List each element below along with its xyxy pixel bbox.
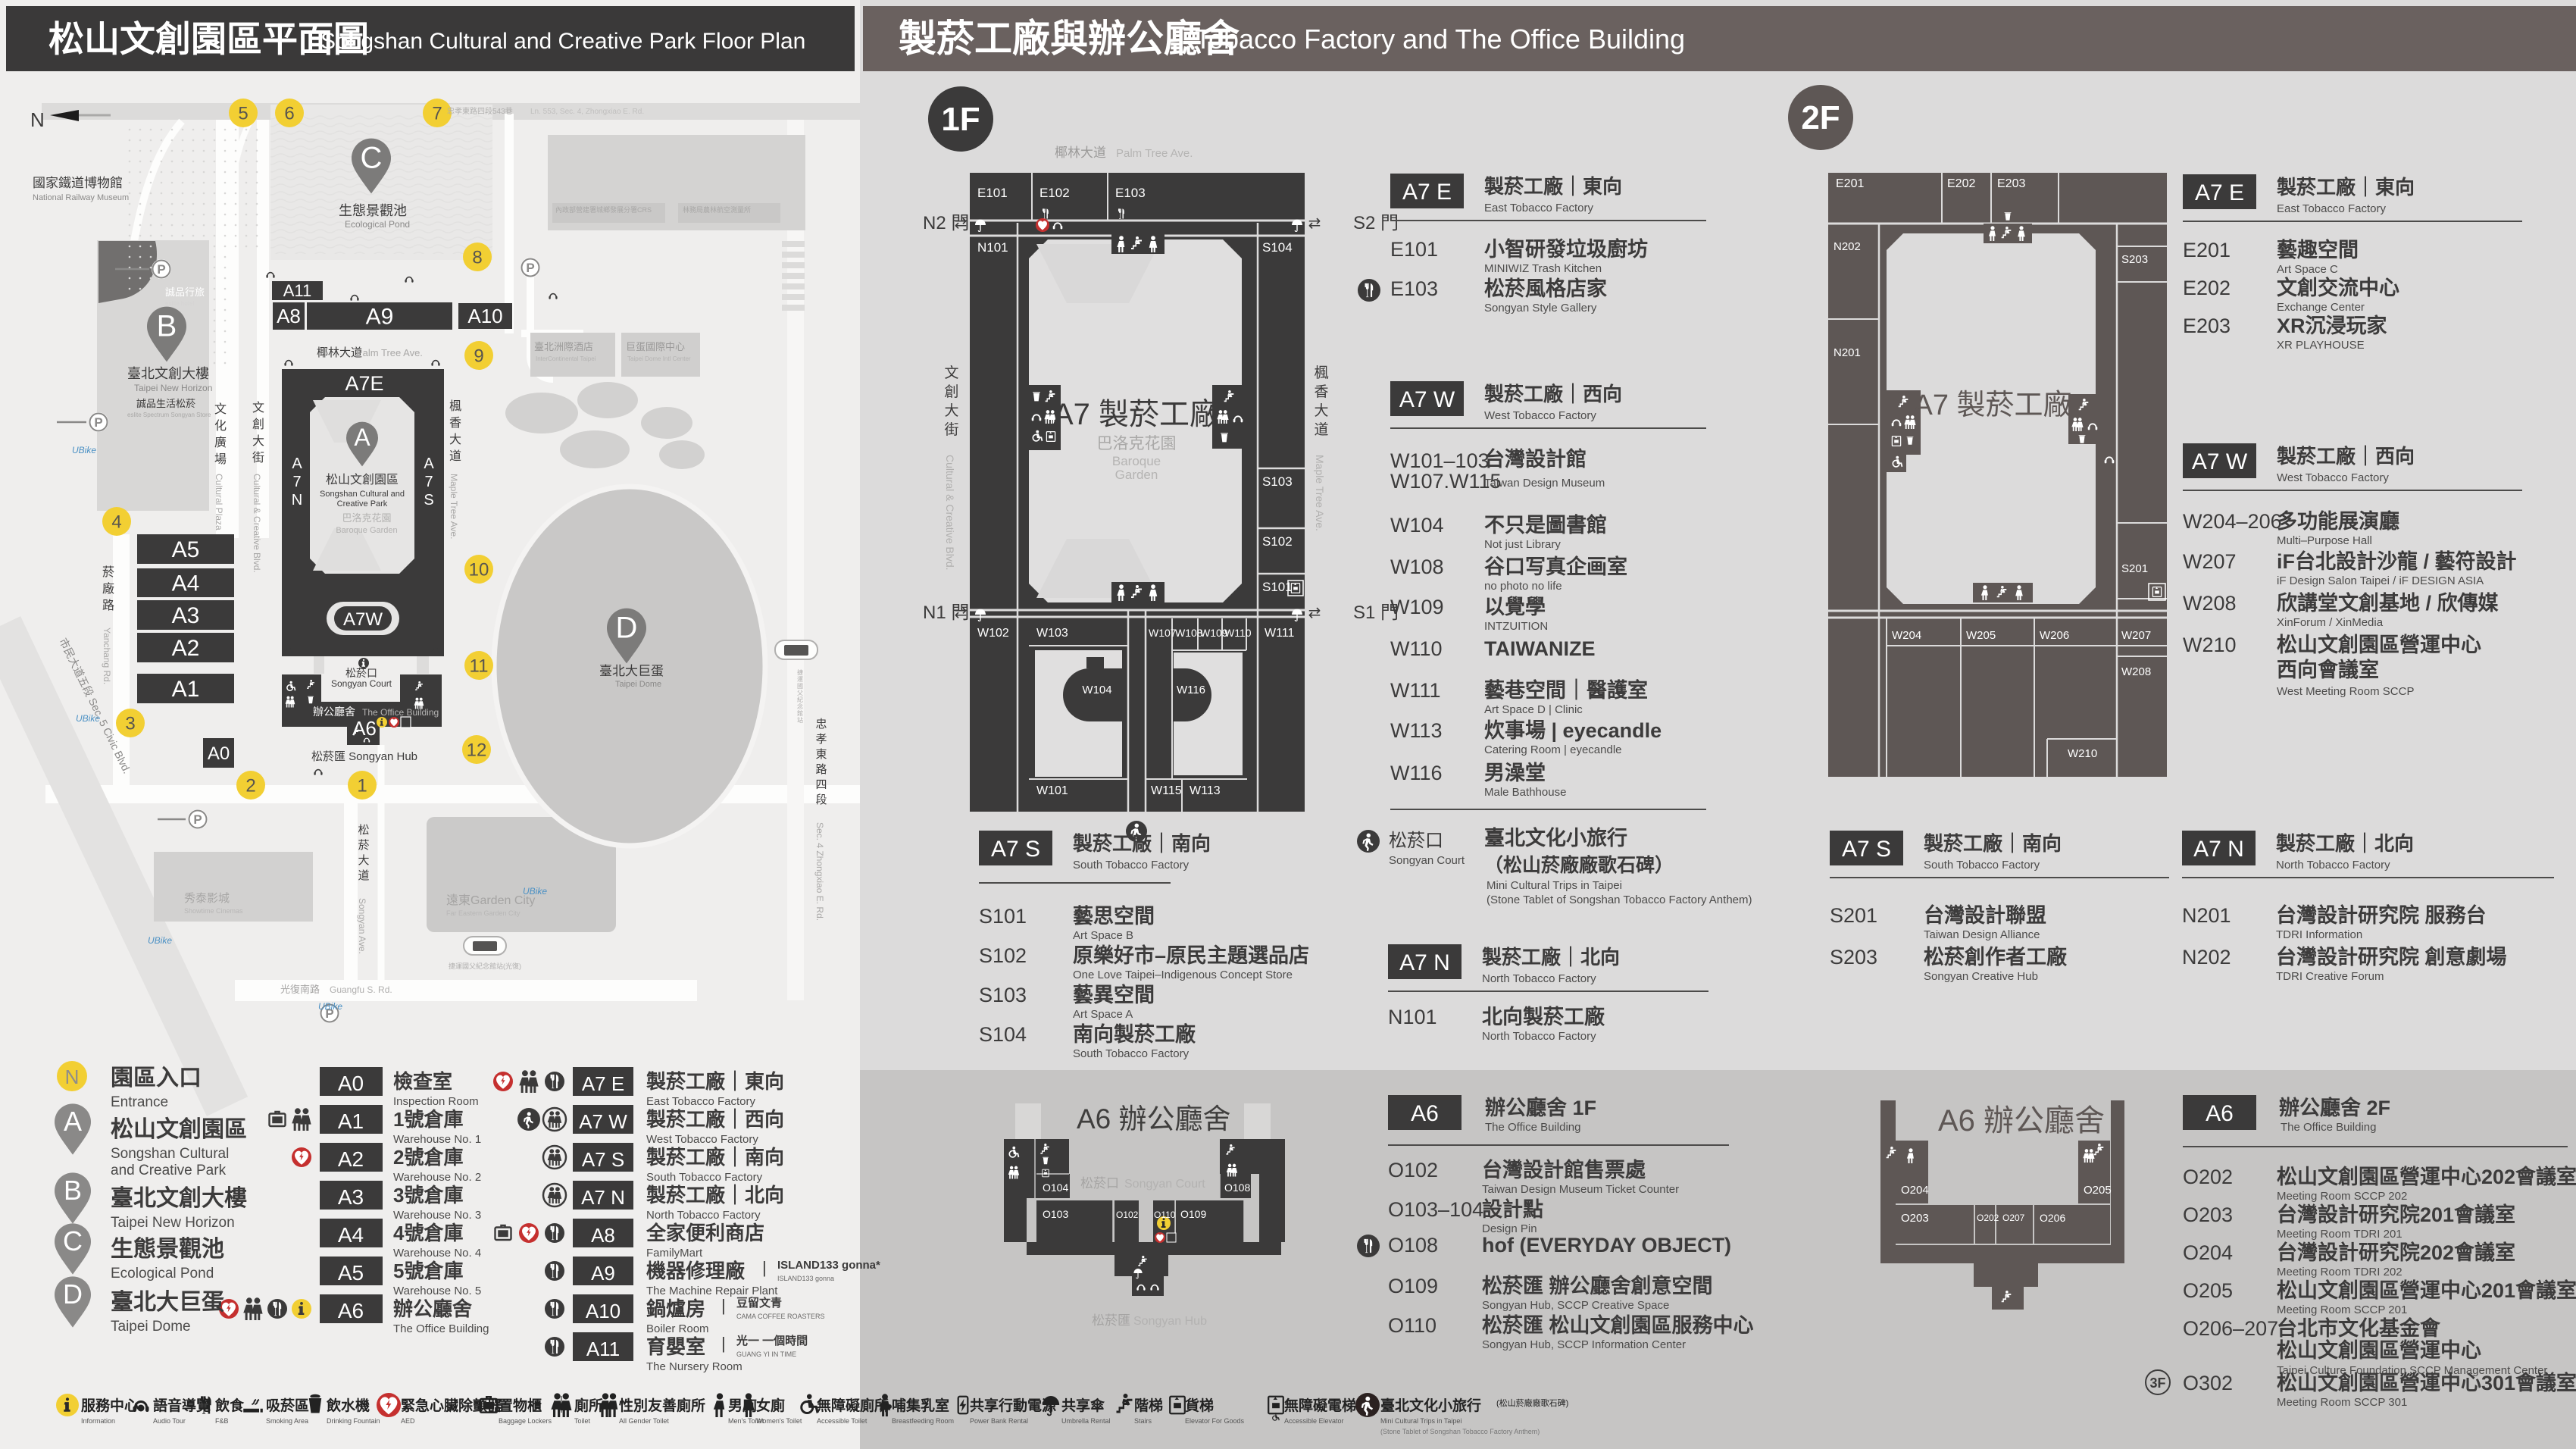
svg-text:A8: A8 [591, 1224, 615, 1247]
svg-text:A2: A2 [172, 636, 200, 661]
svg-text:A7 S: A7 S [1842, 837, 1891, 862]
svg-text:A7 S: A7 S [582, 1148, 624, 1171]
svg-text:One Love Taipei–Indigenous Con: One Love Taipei–Indigenous Concept Store [1073, 969, 1293, 981]
svg-text:松山文創園區營運中心201會議室: 松山文創園區營運中心201會議室 [2277, 1278, 2576, 1302]
svg-text:A10: A10 [467, 305, 502, 327]
svg-text:W103: W103 [1036, 627, 1068, 640]
svg-text:楓: 楓 [1314, 365, 1328, 381]
svg-text:語音導覽: 語音導覽 [153, 1397, 211, 1414]
svg-text:創: 創 [944, 383, 958, 400]
svg-text:1號倉庫: 1號倉庫 [393, 1108, 463, 1131]
svg-text:台灣設計館售票處: 台灣設計館售票處 [1482, 1158, 1646, 1181]
svg-text:Audio Tour: Audio Tour [153, 1417, 186, 1425]
svg-text:W104: W104 [1082, 684, 1111, 696]
svg-text:INTZUITION: INTZUITION [1484, 620, 1548, 633]
svg-text:Songyan Court: Songyan Court [331, 678, 392, 689]
svg-text:N202: N202 [1834, 240, 1861, 253]
svg-text:設計點: 設計點 [1482, 1197, 1543, 1221]
svg-text:貨梯: 貨梯 [1185, 1397, 1214, 1414]
svg-text:豆留文青: 豆留文青 [736, 1296, 782, 1310]
svg-text:UBike: UBike [72, 445, 96, 455]
svg-text:4號倉庫: 4號倉庫 [393, 1222, 463, 1244]
svg-text:台灣設計研究院 服務台: 台灣設計研究院 服務台 [2276, 903, 2487, 927]
svg-text:全家便利商店: 全家便利商店 [646, 1222, 764, 1244]
svg-text:East Tobacco Factory: East Tobacco Factory [646, 1095, 755, 1108]
svg-text:S: S [424, 492, 433, 509]
svg-text:文: 文 [252, 401, 264, 415]
svg-text:松菸匯 松山文創園區服務中心: 松菸匯 松山文創園區服務中心 [1482, 1313, 1754, 1337]
svg-text:W116: W116 [1177, 684, 1205, 696]
svg-text:Palm Tree Ave.: Palm Tree Ave. [356, 347, 423, 358]
svg-text:9: 9 [474, 346, 483, 366]
svg-text:Creative Park: Creative Park [337, 499, 388, 509]
svg-text:飲水機: 飲水機 [326, 1397, 370, 1414]
svg-text:7: 7 [432, 103, 442, 124]
svg-text:飲食: 飲食 [214, 1397, 245, 1414]
svg-text:A9: A9 [591, 1262, 615, 1285]
svg-text:O302: O302 [2183, 1372, 2233, 1394]
svg-text:O206–207: O206–207 [2183, 1317, 2278, 1340]
svg-text:F&B: F&B [215, 1417, 229, 1425]
svg-text:運: 運 [797, 676, 803, 683]
svg-text:階梯: 階梯 [1134, 1397, 1163, 1414]
svg-text:Taipei Dome: Taipei Dome [615, 680, 661, 689]
svg-text:W210: W210 [2183, 634, 2237, 656]
svg-text:松山文創園區營運中心: 松山文創園區營運中心 [2277, 1338, 2481, 1362]
svg-text:父: 父 [797, 690, 803, 696]
svg-text:A7 E: A7 E [582, 1072, 624, 1095]
svg-text:UBike: UBike [148, 935, 172, 946]
svg-text:1F: 1F [941, 101, 980, 138]
svg-text:藝異空間: 藝異空間 [1073, 983, 1155, 1006]
svg-text:Umbrella Rental: Umbrella Rental [1061, 1417, 1111, 1425]
svg-text:C: C [63, 1225, 83, 1257]
svg-text:無障礙廁所: 無障礙廁所 [817, 1397, 889, 1414]
svg-text:楓: 楓 [449, 399, 461, 413]
svg-text:InterContinental Taipei: InterContinental Taipei [536, 355, 596, 362]
svg-text:製菸工廠｜西向: 製菸工廠｜西向 [2277, 445, 2415, 468]
svg-text:|: | [762, 1258, 767, 1277]
svg-text:W204: W204 [1892, 629, 1921, 642]
svg-text:香: 香 [449, 416, 461, 430]
svg-text:機器修理廠: 機器修理廠 [646, 1260, 746, 1282]
svg-text:文: 文 [944, 365, 958, 381]
svg-text:Palm Tree Ave.: Palm Tree Ave. [1116, 147, 1193, 160]
svg-text:S103: S103 [979, 984, 1027, 1006]
svg-text:多功能展演廳: 多功能展演廳 [2277, 509, 2399, 533]
svg-text:西向會議室: 西向會議室 [2277, 658, 2379, 681]
svg-text:松菸匯: 松菸匯 [1092, 1313, 1130, 1328]
svg-text:W108: W108 [1390, 556, 1444, 578]
svg-text:W116: W116 [1390, 762, 1443, 784]
svg-text:東: 東 [815, 748, 827, 761]
svg-text:7: 7 [292, 474, 301, 490]
svg-text:4: 4 [111, 512, 121, 532]
svg-text:A: A [424, 455, 434, 472]
svg-text:S101: S101 [979, 905, 1027, 928]
svg-text:A6 辦公廳舍: A6 辦公廳舍 [1077, 1103, 1231, 1134]
svg-text:欣講堂文創基地 / 欣傳媒: 欣講堂文創基地 / 欣傳媒 [2277, 591, 2499, 615]
svg-text:E203: E203 [1997, 177, 2025, 190]
svg-text:N201: N201 [1834, 346, 1861, 359]
svg-text:Taiwan Design Alliance: Taiwan Design Alliance [1924, 928, 2040, 941]
svg-text:廁所: 廁所 [574, 1397, 603, 1414]
svg-text:臺北洲際酒店: 臺北洲際酒店 [534, 341, 593, 352]
svg-text:國: 國 [797, 683, 803, 690]
svg-text:辦公廳舍: 辦公廳舍 [313, 706, 355, 718]
svg-text:N101: N101 [1388, 1006, 1437, 1028]
svg-text:All Gender Toilet: All Gender Toilet [619, 1417, 669, 1425]
svg-text:W207: W207 [2183, 550, 2237, 573]
svg-text:N: N [292, 492, 302, 509]
svg-text:Mini Cultural Trips in Taipei: Mini Cultural Trips in Taipei [1487, 879, 1622, 892]
svg-text:松: 松 [358, 824, 369, 837]
svg-text:Maple Tree Ave.: Maple Tree Ave. [449, 474, 459, 540]
svg-text:UBike: UBike [76, 713, 100, 724]
svg-text:O110: O110 [1154, 1210, 1176, 1220]
svg-text:Garden: Garden [1115, 468, 1158, 482]
svg-text:A7 E: A7 E [1402, 180, 1452, 205]
svg-text:Toilet: Toilet [574, 1417, 591, 1425]
svg-text:椰林大道: 椰林大道 [317, 346, 362, 359]
svg-text:Art Space B: Art Space B [1073, 929, 1133, 942]
svg-text:Warehouse No. 3: Warehouse No. 3 [393, 1209, 481, 1222]
svg-text:A9: A9 [366, 305, 394, 330]
svg-text:5號倉庫: 5號倉庫 [393, 1260, 463, 1282]
svg-text:and Creative Park: and Creative Park [111, 1163, 227, 1178]
svg-text:Yanchang Rd.: Yanchang Rd. [102, 627, 112, 684]
svg-text:UBike: UBike [523, 886, 547, 897]
svg-text:藝思空間: 藝思空間 [1073, 904, 1155, 928]
svg-text:East Tobacco Factory: East Tobacco Factory [1484, 202, 1593, 214]
svg-text:MINIWIZ Trash Kitchen: MINIWIZ Trash Kitchen [1484, 262, 1602, 275]
svg-text:服務中心: 服務中心 [81, 1397, 139, 1414]
svg-text:O103–104: O103–104 [1388, 1198, 1483, 1221]
svg-text:E101: E101 [977, 186, 1008, 200]
svg-text:Art Space C: Art Space C [2277, 263, 2338, 276]
svg-text:松菸風格店家: 松菸風格店家 [1484, 277, 1607, 300]
svg-text:Far Eastern Garden City: Far Eastern Garden City [446, 909, 521, 917]
svg-text:鍋爐房: 鍋爐房 [646, 1297, 705, 1320]
svg-text:(Stone Tablet of Songshan Toba: (Stone Tablet of Songshan Tobacco Factor… [1380, 1428, 1540, 1435]
svg-text:N101: N101 [977, 240, 1008, 255]
svg-text:O203: O203 [1901, 1212, 1929, 1225]
svg-text:Warehouse No. 4: Warehouse No. 4 [393, 1247, 481, 1260]
svg-text:Warehouse No. 2: Warehouse No. 2 [393, 1171, 481, 1184]
svg-text:hof (EVERYDAY OBJECT): hof (EVERYDAY OBJECT) [1482, 1234, 1731, 1257]
svg-text:O109: O109 [1180, 1208, 1206, 1220]
svg-text:館: 館 [797, 709, 803, 717]
svg-text:West Tobacco Factory: West Tobacco Factory [2277, 471, 2389, 484]
svg-text:Songyan Hub: Songyan Hub [1133, 1315, 1207, 1328]
svg-text:West Tobacco Factory: West Tobacco Factory [1484, 409, 1596, 422]
svg-text:10: 10 [469, 559, 489, 580]
svg-text:臺北大巨蛋: 臺北大巨蛋 [599, 664, 664, 678]
svg-text:台灣設計研究院202會議室: 台灣設計研究院202會議室 [2277, 1241, 2515, 1264]
svg-text:W109: W109 [1390, 596, 1444, 618]
svg-text:A7 S: A7 S [991, 837, 1040, 862]
svg-text:eslite Spectrum Songyan Store: eslite Spectrum Songyan Store [127, 412, 211, 418]
svg-text:2: 2 [245, 775, 255, 796]
svg-text:男廁: 男廁 [728, 1397, 757, 1414]
svg-text:臺北文化小旅行: 臺北文化小旅行 [1380, 1397, 1481, 1414]
svg-text:街: 街 [944, 421, 958, 438]
svg-text:製菸工廠｜南向: 製菸工廠｜南向 [646, 1146, 784, 1169]
svg-text:E202: E202 [2183, 277, 2231, 299]
svg-text:The Office Building: The Office Building [393, 1322, 489, 1335]
svg-text:3: 3 [125, 713, 135, 734]
svg-text:吸菸區: 吸菸區 [266, 1397, 309, 1414]
svg-text:|: | [721, 1296, 726, 1315]
svg-text:大: 大 [1314, 402, 1328, 419]
svg-text:巨蛋國際中心: 巨蛋國際中心 [626, 341, 685, 352]
svg-text:Not just Library: Not just Library [1484, 538, 1561, 551]
svg-text:B: B [157, 309, 177, 343]
svg-text:製菸工廠｜北向: 製菸工廠｜北向 [646, 1184, 784, 1206]
svg-text:台灣設計館: 台灣設計館 [1484, 447, 1587, 471]
svg-text:E202: E202 [1947, 177, 1975, 190]
svg-text:W208: W208 [2183, 592, 2237, 615]
svg-text:菸: 菸 [102, 565, 114, 579]
svg-text:S102: S102 [1262, 534, 1293, 549]
svg-text:園區入口: 園區入口 [111, 1066, 202, 1091]
svg-text:W206: W206 [2040, 629, 2069, 642]
svg-text:光一 一個時間: 光一 一個時間 [736, 1334, 808, 1347]
svg-text:W107: W107 [1149, 627, 1177, 639]
svg-text:A7 W: A7 W [579, 1110, 627, 1133]
svg-text:ISLAND133 gonna*: ISLAND133 gonna* [777, 1259, 880, 1272]
svg-text:W110: W110 [1224, 627, 1252, 639]
svg-text:製菸工廠｜西向: 製菸工廠｜西向 [646, 1108, 784, 1131]
svg-text:ISLAND133 gonna: ISLAND133 gonna [777, 1275, 834, 1282]
svg-text:松山文創園區: 松山文創園區 [326, 473, 399, 487]
svg-text:Warehouse No. 5: Warehouse No. 5 [393, 1285, 481, 1297]
svg-text:原樂好市–原民主題選品店: 原樂好市–原民主題選品店 [1073, 944, 1309, 967]
svg-text:W102: W102 [977, 627, 1009, 640]
svg-text:no photo no life: no photo no life [1484, 580, 1562, 593]
svg-text:巴洛克花園: 巴洛克花園 [1097, 435, 1177, 452]
svg-text:A6 辦公廳舍: A6 辦公廳舍 [1938, 1104, 2105, 1138]
svg-text:Exchange Center: Exchange Center [2277, 301, 2365, 314]
svg-text:S2 門: S2 門 [1353, 213, 1399, 233]
svg-text:E201: E201 [2183, 239, 2231, 261]
svg-text:O202: O202 [2183, 1166, 2233, 1188]
svg-text:E201: E201 [1836, 177, 1864, 190]
svg-text:廠: 廠 [102, 581, 114, 596]
svg-text:11: 11 [470, 656, 489, 676]
svg-text:W101–103: W101–103 [1390, 449, 1490, 472]
svg-text:N: N [65, 1066, 80, 1088]
svg-text:街: 街 [252, 451, 264, 465]
svg-text:Songyan Hub, SCCP Information: Songyan Hub, SCCP Information Center [1482, 1338, 1686, 1351]
svg-text:A3: A3 [338, 1185, 364, 1209]
svg-text:North Tobacco Factory: North Tobacco Factory [1482, 972, 1596, 985]
svg-text:W101: W101 [1036, 784, 1068, 797]
svg-text:O207: O207 [2002, 1213, 2025, 1223]
svg-text:Taipei New Horizon: Taipei New Horizon [134, 383, 212, 393]
svg-text:生態景觀池: 生態景觀池 [339, 203, 407, 218]
svg-text:Inspection Room: Inspection Room [393, 1095, 479, 1108]
svg-text:大: 大 [358, 854, 369, 867]
svg-text:台灣設計研究院201會議室: 台灣設計研究院201會議室 [2277, 1203, 2515, 1226]
svg-text:E103: E103 [1115, 186, 1146, 200]
svg-text:South Tobacco Factory: South Tobacco Factory [1924, 859, 2040, 872]
svg-text:XR PLAYHOUSE: XR PLAYHOUSE [2277, 339, 2365, 352]
svg-text:XR沉浸玩家: XR沉浸玩家 [2277, 314, 2387, 337]
svg-text:性別友善廁所: 性別友善廁所 [619, 1397, 705, 1414]
svg-text:O102: O102 [1388, 1159, 1438, 1181]
svg-text:Songyan Style Gallery: Songyan Style Gallery [1484, 302, 1597, 315]
svg-text:臺北文創大樓: 臺北文創大樓 [127, 366, 209, 381]
svg-text:製菸工廠｜東向: 製菸工廠｜東向 [646, 1070, 784, 1093]
svg-text:W111: W111 [1265, 627, 1295, 640]
svg-text:3F: 3F [2149, 1375, 2165, 1391]
svg-text:Taipei New Horizon: Taipei New Horizon [111, 1215, 235, 1231]
svg-text:製菸工廠｜北向: 製菸工廠｜北向 [1482, 946, 1620, 969]
svg-text:The Office Building: The Office Building [1485, 1121, 1580, 1134]
svg-text:製菸工廠｜東向: 製菸工廠｜東向 [1484, 175, 1622, 198]
svg-text:7: 7 [424, 474, 433, 490]
svg-text:A7E: A7E [345, 372, 383, 395]
svg-text:N202: N202 [2182, 946, 2231, 969]
svg-text:Elevator For Goods: Elevator For Goods [1185, 1417, 1245, 1425]
svg-text:A5: A5 [338, 1261, 364, 1285]
svg-text:P: P [526, 261, 534, 275]
svg-text:Songyan Creative Hub: Songyan Creative Hub [1924, 970, 2038, 983]
svg-text:北向製菸工廠: 北向製菸工廠 [1482, 1005, 1605, 1028]
svg-text:路: 路 [815, 763, 827, 776]
svg-text:Taiwan Design Museum Ticket Co: Taiwan Design Museum Ticket Counter [1482, 1183, 1679, 1196]
svg-text:W110: W110 [1390, 637, 1443, 660]
svg-text:松山文創園區營運中心301會議室: 松山文創園區營運中心301會議室 [2277, 1371, 2576, 1394]
svg-text:XinForum / XinMedia: XinForum / XinMedia [2277, 616, 2384, 629]
svg-text:道: 道 [449, 449, 461, 463]
svg-text:A7 製菸工廠: A7 製菸工廠 [1053, 398, 1220, 431]
svg-text:12: 12 [467, 740, 487, 760]
svg-text:A4: A4 [172, 571, 200, 596]
svg-text:A: A [354, 424, 370, 451]
svg-text:念: 念 [797, 703, 803, 710]
svg-text:O205: O205 [2084, 1184, 2112, 1197]
svg-text:North Tobacco Factory: North Tobacco Factory [1482, 1030, 1596, 1043]
svg-text:W111: W111 [1390, 679, 1441, 702]
svg-text:A1: A1 [338, 1109, 364, 1133]
svg-text:The Office Building: The Office Building [2281, 1121, 2376, 1134]
svg-text:TDRI Information: TDRI Information [2276, 928, 2362, 941]
svg-text:大: 大 [944, 402, 958, 419]
svg-text:FamilyMart: FamilyMart [646, 1247, 703, 1260]
svg-text:Meeting Room SCCP 202: Meeting Room SCCP 202 [2277, 1190, 2407, 1203]
svg-text:Accessible Elevator: Accessible Elevator [1284, 1417, 1344, 1425]
svg-text:⇄: ⇄ [1308, 215, 1321, 232]
svg-text:O205: O205 [2183, 1279, 2233, 1302]
svg-text:Power Bank Rental: Power Bank Rental [970, 1417, 1028, 1425]
svg-text:松菸口: 松菸口 [1389, 831, 1443, 851]
svg-text:6: 6 [284, 103, 294, 124]
svg-text:松菸口: 松菸口 [345, 667, 377, 679]
svg-text:台北市文化基金會: 台北市文化基金會 [2277, 1316, 2441, 1340]
svg-text:道: 道 [1314, 421, 1328, 438]
svg-text:S201: S201 [2121, 562, 2148, 575]
svg-text:A3: A3 [172, 603, 200, 628]
svg-text:光復南路: 光復南路 [280, 984, 320, 995]
svg-text:Tobacco Factory and The Office: Tobacco Factory and The Office Building [1195, 23, 1685, 55]
svg-text:無障礙電梯: 無障礙電梯 [1284, 1397, 1356, 1414]
svg-text:臺北大巨蛋: 臺北大巨蛋 [111, 1290, 224, 1315]
svg-text:A: A [292, 455, 302, 472]
svg-text:O203: O203 [2183, 1203, 2233, 1226]
svg-text:製菸工廠｜西向: 製菸工廠｜西向 [1484, 383, 1622, 405]
svg-text:A4: A4 [338, 1223, 364, 1247]
svg-text:South Tobacco Factory: South Tobacco Factory [1073, 859, 1190, 872]
svg-text:Showtime Cinemas: Showtime Cinemas [184, 907, 243, 915]
svg-text:The Office Building: The Office Building [362, 707, 439, 718]
svg-text:iF Design Salon Taipei / iF DE: iF Design Salon Taipei / iF DESIGN ASIA [2277, 574, 2484, 587]
svg-text:A7 W: A7 W [1399, 387, 1455, 412]
svg-text:A6: A6 [338, 1299, 364, 1322]
svg-text:⇄: ⇄ [955, 215, 968, 232]
svg-text:North Tobacco Factory: North Tobacco Factory [2276, 859, 2390, 872]
svg-text:A1: A1 [172, 677, 200, 702]
svg-text:松菸創作者工廠: 松菸創作者工廠 [1924, 945, 2067, 969]
svg-text:誠品生活松菸: 誠品生活松菸 [136, 398, 195, 409]
svg-text:Smoking Area: Smoking Area [266, 1417, 308, 1425]
svg-text:Taipei Dome Intl Center: Taipei Dome Intl Center [627, 355, 691, 362]
svg-text:置物櫃: 置物櫃 [499, 1397, 542, 1414]
svg-text:N: N [30, 108, 45, 131]
svg-text:A7 製菸工廠: A7 製菸工廠 [1913, 390, 2071, 421]
svg-text:國家鐵道博物館: 國家鐵道博物館 [33, 176, 123, 190]
svg-text:⇄: ⇄ [1308, 605, 1321, 621]
svg-text:W207: W207 [2121, 629, 2151, 642]
svg-text:林務局農林航空測量所: 林務局農林航空測量所 [683, 205, 751, 214]
svg-text:A7 E: A7 E [2195, 180, 2244, 205]
svg-text:W108: W108 [1175, 627, 1203, 639]
svg-text:A6: A6 [1411, 1101, 1439, 1126]
svg-text:谷口写真企画室: 谷口写真企画室 [1484, 555, 1627, 578]
svg-text:TDRI Creative Forum: TDRI Creative Forum [2276, 970, 2384, 983]
svg-text:Ln. 553, Sec. 4, Zhongxiao E.: Ln. 553, Sec. 4, Zhongxiao E. Rd. [530, 108, 644, 116]
svg-text:W113: W113 [1190, 784, 1221, 797]
svg-text:化: 化 [214, 419, 227, 433]
svg-text:W205: W205 [1966, 629, 1996, 642]
svg-text:松山文創園區營運中心202會議室: 松山文創園區營運中心202會議室 [2277, 1165, 2576, 1188]
svg-text:TAIWANIZE: TAIWANIZE [1484, 637, 1595, 660]
svg-text:Songshan Cultural and: Songshan Cultural and [320, 490, 405, 499]
svg-text:哺集乳室: 哺集乳室 [892, 1397, 949, 1414]
svg-text:Boiler Room: Boiler Room [646, 1322, 709, 1335]
svg-text:Information: Information [81, 1417, 115, 1425]
svg-text:松菸口: 松菸口 [1080, 1176, 1119, 1191]
svg-text:(Stone Tablet of Songshan Toba: (Stone Tablet of Songshan Tobacco Factor… [1487, 893, 1752, 906]
svg-text:|: | [721, 1334, 726, 1353]
svg-text:文創交流中心: 文創交流中心 [2277, 276, 2399, 299]
svg-text:松菸匯 Songyan Hub: 松菸匯 Songyan Hub [311, 750, 417, 763]
svg-text:A5: A5 [172, 537, 200, 562]
svg-text:Songyan Hub, SCCP Creative Spa: Songyan Hub, SCCP Creative Space [1482, 1299, 1669, 1312]
svg-text:（松山菸廠廠歌石碑）: （松山菸廠廠歌石碑） [1484, 854, 1674, 876]
svg-text:辦公廳舍 2F: 辦公廳舍 2F [2279, 1096, 2390, 1119]
svg-text:Catering Room | eyecandle: Catering Room | eyecandle [1484, 743, 1622, 756]
svg-text:男澡堂: 男澡堂 [1484, 762, 1546, 784]
svg-text:台灣設計聯盟: 台灣設計聯盟 [1924, 903, 2046, 927]
svg-text:臺北文創大樓: 臺北文創大樓 [111, 1185, 247, 1211]
svg-text:W113: W113 [1390, 719, 1443, 742]
svg-text:炊事場 | eyecandle: 炊事場 | eyecandle [1484, 719, 1662, 742]
svg-text:O108: O108 [1388, 1234, 1438, 1257]
svg-text:O108: O108 [1224, 1181, 1250, 1194]
svg-text:A7 N: A7 N [1399, 950, 1450, 975]
